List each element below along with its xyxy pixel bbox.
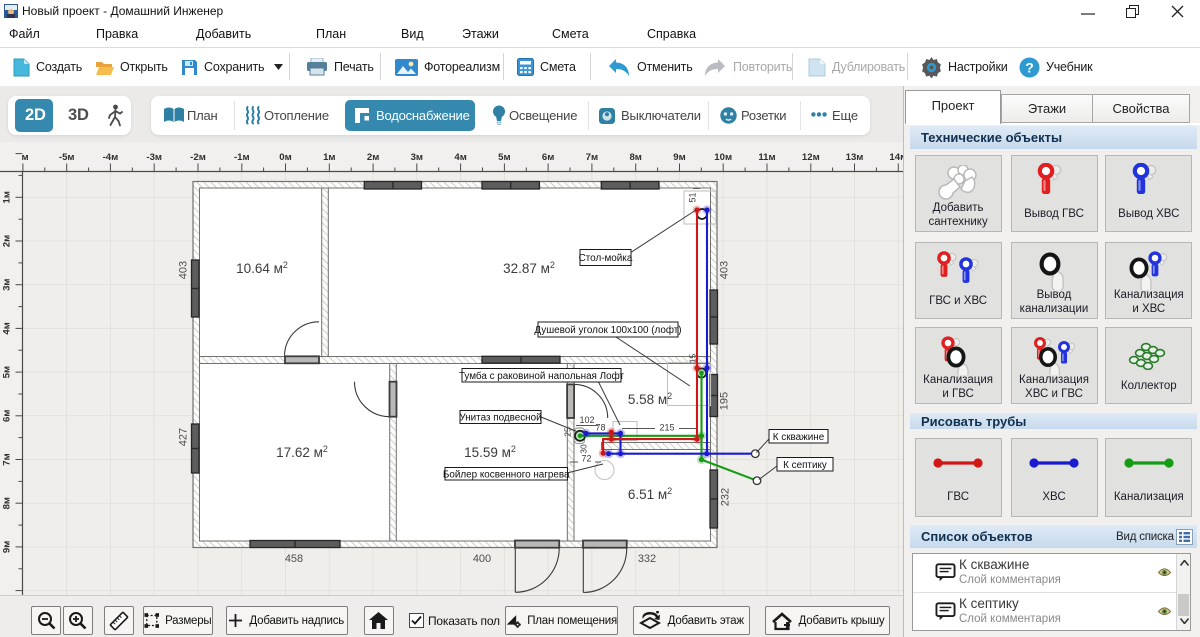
svg-text:Душевой уголок 100х100 (лофт): Душевой уголок 100х100 (лофт) — [534, 325, 681, 336]
svg-text:1м: 1м — [2, 191, 13, 203]
svg-text:15.59 м2: 15.59 м2 — [464, 444, 516, 460]
svg-text:-1м: -1м — [234, 152, 250, 163]
svg-text:17.62 м2: 17.62 м2 — [276, 444, 328, 460]
svg-text:14м: 14м — [889, 152, 903, 163]
svg-text:Тумба с раковиной напольная Ло: Тумба с раковиной напольная Лофт — [459, 371, 625, 382]
svg-text:13м: 13м — [846, 152, 864, 163]
svg-text:-5м: -5м — [59, 152, 75, 163]
svg-text:9м: 9м — [673, 152, 685, 163]
svg-text:3м: 3м — [2, 278, 13, 290]
svg-text:8м: 8м — [2, 497, 13, 509]
svg-text:11м: 11м — [758, 152, 775, 163]
svg-text:403: 403 — [719, 261, 731, 279]
svg-text:12м: 12м — [802, 152, 820, 163]
svg-text:10.64 м2: 10.64 м2 — [236, 260, 288, 276]
svg-text:427: 427 — [178, 428, 190, 446]
svg-text:-4м: -4м — [103, 152, 119, 163]
svg-text:0м: 0м — [279, 152, 291, 163]
svg-text:-2м: -2м — [190, 152, 206, 163]
svg-text:?: ? — [1025, 59, 1034, 75]
svg-text:215: 215 — [659, 423, 674, 433]
svg-text:Унитаз подвесной: Унитаз подвесной — [459, 413, 541, 424]
svg-text:8м: 8м — [629, 152, 641, 163]
svg-text:400: 400 — [473, 553, 491, 565]
svg-text:6м: 6м — [2, 410, 13, 422]
svg-text:458: 458 — [285, 553, 303, 565]
svg-text:м: м — [21, 152, 28, 163]
svg-text:232: 232 — [720, 488, 732, 506]
svg-text:9м: 9м — [2, 541, 13, 553]
svg-text:2м: 2м — [2, 235, 13, 247]
svg-text:6.51 м2: 6.51 м2 — [628, 486, 672, 502]
svg-text:10м: 10м — [714, 152, 732, 163]
svg-text:78: 78 — [595, 423, 605, 433]
svg-text:6м: 6м — [542, 152, 554, 163]
svg-text:4м: 4м — [2, 322, 13, 334]
svg-text:1м: 1м — [323, 152, 335, 163]
svg-text:-3м: -3м — [146, 152, 162, 163]
svg-text:7м: 7м — [586, 152, 598, 163]
svg-text:5.58 м2: 5.58 м2 — [628, 391, 672, 407]
svg-text:30: 30 — [579, 444, 589, 454]
svg-text:332: 332 — [638, 553, 656, 565]
svg-text:7м: 7м — [2, 453, 13, 465]
svg-text:К септику: К септику — [783, 460, 827, 471]
svg-text:25: 25 — [563, 427, 573, 437]
svg-text:15: 15 — [688, 354, 698, 364]
svg-text:32.87 м2: 32.87 м2 — [503, 260, 555, 276]
svg-text:195: 195 — [719, 392, 731, 410]
svg-text:К скважине: К скважине — [773, 432, 825, 443]
svg-text:Бойлер косвенного нагрева: Бойлер косвенного нагрева — [443, 469, 570, 480]
svg-text:4м: 4м — [454, 152, 466, 163]
svg-text:51: 51 — [688, 192, 698, 202]
svg-text:403: 403 — [178, 261, 190, 279]
svg-text:5м: 5м — [2, 366, 13, 378]
svg-text:2м: 2м — [367, 152, 379, 163]
svg-text:5м: 5м — [498, 152, 510, 163]
svg-text:102: 102 — [579, 415, 594, 425]
svg-text:3м: 3м — [411, 152, 423, 163]
svg-text:72: 72 — [581, 454, 591, 464]
svg-text:Стол-мойка: Стол-мойка — [579, 253, 633, 264]
